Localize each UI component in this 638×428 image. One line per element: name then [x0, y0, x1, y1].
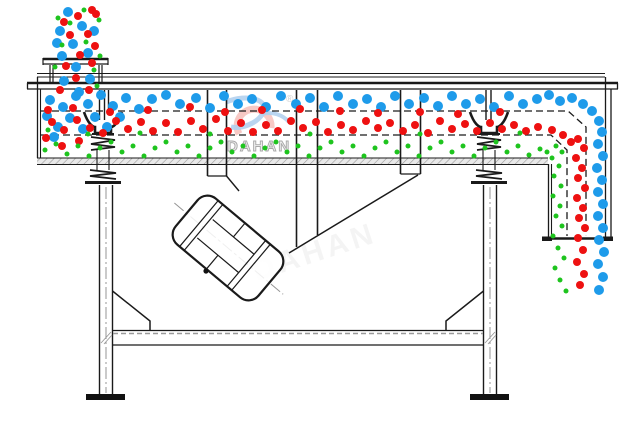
particle-large_blue — [599, 247, 609, 257]
particle-small_green — [274, 140, 279, 145]
brand-text: DAHAN — [227, 138, 291, 155]
particle-medium_red — [580, 144, 588, 152]
particle-small_green — [450, 150, 455, 155]
particle-small_green — [552, 174, 557, 179]
diagram-canvas: DAHAN ® DAHAN — [0, 0, 638, 428]
particle-small_green — [296, 144, 301, 149]
foot-pad-right — [470, 394, 509, 400]
particle-small_green — [153, 146, 158, 151]
particle-small_green — [46, 128, 51, 133]
particle-medium_red — [573, 194, 581, 202]
particle-small_green — [109, 140, 114, 145]
particle-large_blue — [63, 7, 73, 17]
particle-small_green — [329, 140, 334, 145]
particle-large_blue — [544, 90, 554, 100]
particle-medium_red — [578, 164, 586, 172]
particle-medium_red — [287, 117, 295, 125]
particle-small_green — [307, 154, 312, 159]
particle-small_green — [263, 146, 268, 151]
particle-medium_red — [567, 138, 575, 146]
particle-small_green — [556, 246, 561, 251]
particle-small_green — [120, 150, 125, 155]
particle-medium_red — [86, 124, 94, 132]
particle-medium_red — [581, 184, 589, 192]
particle-small_green — [554, 144, 559, 149]
particle-medium_red — [199, 125, 207, 133]
particle-large_blue — [555, 96, 565, 106]
particle-small_green — [417, 154, 422, 159]
particle-large_blue — [45, 95, 55, 105]
particle-small_green — [560, 150, 565, 155]
particle-large_blue — [390, 91, 400, 101]
particle-medium_red — [162, 119, 170, 127]
particle-medium_red — [66, 31, 74, 39]
particle-medium_red — [336, 107, 344, 115]
particle-medium_red — [187, 117, 195, 125]
particle-small_green — [527, 153, 532, 158]
particle-medium_red — [72, 74, 80, 82]
particle-medium_red — [84, 30, 92, 38]
particle-large_blue — [83, 48, 93, 58]
particle-medium_red — [42, 134, 50, 142]
particle-large_blue — [593, 211, 603, 221]
particle-medium_red — [579, 204, 587, 212]
particle-medium_red — [580, 270, 588, 278]
particle-small_green — [318, 146, 323, 151]
particle-large_blue — [161, 90, 171, 100]
particle-large_blue — [598, 151, 608, 161]
particle-medium_red — [576, 281, 584, 289]
particle-large_blue — [532, 94, 542, 104]
particle-small_green — [197, 154, 202, 159]
particle-small_green — [439, 140, 444, 145]
particle-medium_red — [574, 174, 582, 182]
particle-medium_red — [62, 62, 70, 70]
particle-large_blue — [175, 99, 185, 109]
particle-large_blue — [598, 199, 608, 209]
particle-large_blue — [419, 93, 429, 103]
particle-small_green — [60, 43, 65, 48]
particle-medium_red — [324, 128, 332, 136]
particle-large_blue — [49, 132, 59, 142]
particle-small_green — [175, 150, 180, 155]
particle-medium_red — [296, 105, 304, 113]
particle-medium_red — [137, 118, 145, 126]
particle-medium_red — [74, 12, 82, 20]
gusset-right — [446, 291, 484, 331]
particle-medium_red — [510, 121, 518, 129]
particle-medium_red — [48, 118, 56, 126]
particle-large_blue — [71, 62, 81, 72]
particle-small_green — [559, 184, 564, 189]
particle-medium_red — [399, 127, 407, 135]
particle-small_green — [564, 289, 569, 294]
particle-medium_red — [572, 154, 580, 162]
particle-large_blue — [319, 102, 329, 112]
particle-small_green — [494, 140, 499, 145]
particle-small_green — [516, 144, 521, 149]
support-leg-left — [86, 185, 125, 400]
gusset-left — [113, 291, 151, 331]
particle-medium_red — [337, 121, 345, 129]
particle-medium_red — [221, 108, 229, 116]
particle-small_green — [43, 148, 48, 153]
particle-large_blue — [594, 235, 604, 245]
particle-small_green — [208, 146, 213, 151]
particle-medium_red — [374, 109, 382, 117]
particle-small_green — [76, 144, 81, 149]
particle-small_green — [418, 132, 423, 137]
particle-small_green — [164, 140, 169, 145]
particle-small_green — [461, 144, 466, 149]
particle-small_green — [472, 154, 477, 159]
particle-small_green — [95, 84, 100, 89]
particle-medium_red — [496, 108, 504, 116]
particle-medium_red — [374, 124, 382, 132]
particle-small_green — [351, 144, 356, 149]
particle-small_green — [87, 154, 92, 159]
particle-small_green — [84, 40, 89, 45]
particle-small_green — [219, 140, 224, 145]
particle-small_green — [483, 146, 488, 151]
particle-medium_red — [473, 127, 481, 135]
particle-medium_red — [224, 127, 232, 135]
particle-medium_red — [237, 119, 245, 127]
particle-small_green — [373, 146, 378, 151]
particle-large_blue — [597, 175, 607, 185]
particle-small_green — [545, 150, 550, 155]
particle-medium_red — [212, 115, 220, 123]
particle-small_green — [142, 154, 147, 159]
particle-medium_red — [498, 125, 506, 133]
vibrating-screen-diagram: DAHAN ® DAHAN — [0, 0, 638, 428]
particle-large_blue — [518, 99, 528, 109]
particle-medium_red — [362, 117, 370, 125]
particle-medium_red — [69, 104, 77, 112]
particle-small_green — [550, 156, 555, 161]
particle-large_blue — [71, 91, 81, 101]
particle-small_green — [53, 65, 58, 70]
particle-medium_red — [522, 127, 530, 135]
particle-small_green — [241, 144, 246, 149]
particle-medium_red — [573, 258, 581, 266]
particle-medium_red — [249, 128, 257, 136]
particle-small_green — [538, 147, 543, 152]
particle-large_blue — [567, 93, 577, 103]
particle-medium_red — [575, 214, 583, 222]
particle-large_blue — [598, 223, 608, 233]
particle-small_green — [518, 131, 523, 136]
particle-large_blue — [58, 102, 68, 112]
particle-medium_red — [486, 119, 494, 127]
particle-medium_red — [574, 234, 582, 242]
particle-large_blue — [55, 26, 65, 36]
particle-large_blue — [598, 272, 608, 282]
particle-small_green — [186, 144, 191, 149]
particle-large_blue — [77, 21, 87, 31]
particle-medium_red — [112, 117, 120, 125]
particle-large_blue — [90, 112, 100, 122]
particle-small_green — [551, 194, 556, 199]
particle-medium_red — [411, 121, 419, 129]
particle-small_green — [252, 154, 257, 159]
particle-large_blue — [276, 91, 286, 101]
particle-medium_red — [454, 110, 462, 118]
particle-medium_red — [461, 120, 469, 128]
particle-small_green — [406, 144, 411, 149]
particle-medium_red — [73, 116, 81, 124]
particle-large_blue — [305, 93, 315, 103]
particle-large_blue — [593, 259, 603, 269]
particle-large_blue — [219, 91, 229, 101]
particle-small_green — [65, 152, 70, 157]
particle-medium_red — [92, 10, 100, 18]
particle-small_green — [551, 234, 556, 239]
particle-large_blue — [121, 93, 131, 103]
particle-medium_red — [56, 86, 64, 94]
motor-bolt-dot — [203, 268, 208, 273]
particle-large_blue — [587, 106, 597, 116]
particle-large_blue — [504, 91, 514, 101]
base-beam — [101, 331, 496, 346]
particle-large_blue — [348, 99, 358, 109]
particle-small_green — [384, 140, 389, 145]
particle-small_green — [98, 54, 103, 59]
particle-medium_red — [416, 108, 424, 116]
particle-large_blue — [362, 94, 372, 104]
particle-large_blue — [578, 99, 588, 109]
particle-medium_red — [581, 224, 589, 232]
particle-small_green — [553, 266, 558, 271]
particle-small_green — [505, 150, 510, 155]
particle-large_blue — [593, 187, 603, 197]
screen-box-lid — [27, 74, 618, 90]
support-leg-right — [470, 185, 509, 400]
particle-small_green — [97, 18, 102, 23]
particle-large_blue — [85, 74, 95, 84]
particle-small_green — [558, 278, 563, 283]
particle-medium_red — [60, 126, 68, 134]
particle-medium_red — [262, 121, 270, 129]
particle-medium_red — [258, 106, 266, 114]
particle-large_blue — [433, 101, 443, 111]
particle-medium_red — [579, 246, 587, 254]
particle-medium_red — [534, 123, 542, 131]
motor-link-line — [227, 176, 240, 191]
particle-medium_red — [299, 124, 307, 132]
particle-small_green — [395, 150, 400, 155]
particle-medium_red — [99, 129, 107, 137]
particle-small_green — [92, 68, 97, 73]
particle-large_blue — [594, 285, 604, 295]
particle-large_blue — [68, 39, 78, 49]
particle-large_blue — [404, 99, 414, 109]
particle-medium_red — [559, 131, 567, 139]
particle-small_green — [362, 154, 367, 159]
particle-large_blue — [233, 99, 243, 109]
particle-large_blue — [205, 103, 215, 113]
particle-large_blue — [83, 99, 93, 109]
screen-deck-2 — [41, 135, 567, 236]
particle-small_green — [308, 132, 313, 137]
particle-medium_red — [274, 127, 282, 135]
particle-medium_red — [44, 106, 52, 114]
foot-pad-left — [86, 394, 125, 400]
particle-large_blue — [134, 104, 144, 114]
particle-small_green — [82, 8, 87, 13]
particle-medium_red — [349, 126, 357, 134]
particle-medium_red — [144, 106, 152, 114]
particle-small_green — [560, 224, 565, 229]
particle-medium_red — [149, 127, 157, 135]
particle-small_green — [230, 150, 235, 155]
particle-large_blue — [461, 99, 471, 109]
particle-large_blue — [592, 163, 602, 173]
particle-medium_red — [60, 18, 68, 26]
particle-medium_red — [424, 129, 432, 137]
particle-large_blue — [447, 91, 457, 101]
particle-large_blue — [333, 91, 343, 101]
particle-small_green — [98, 146, 103, 151]
particle-large_blue — [96, 90, 106, 100]
particle-large_blue — [247, 94, 257, 104]
particle-medium_red — [386, 119, 394, 127]
particle-medium_red — [88, 59, 96, 67]
particle-medium_red — [76, 51, 84, 59]
particle-large_blue — [147, 94, 157, 104]
particle-small_green — [562, 256, 567, 261]
particle-medium_red — [186, 103, 194, 111]
particle-large_blue — [57, 51, 67, 61]
spring-assembly-right — [470, 90, 508, 183]
particle-small_green — [138, 131, 143, 136]
particle-small_green — [208, 132, 213, 137]
particle-small_green — [340, 150, 345, 155]
particle-small_green — [285, 150, 290, 155]
particle-medium_red — [548, 126, 556, 134]
particle-large_blue — [593, 139, 603, 149]
particle-small_green — [428, 146, 433, 151]
particle-large_blue — [59, 76, 69, 86]
particle-large_blue — [475, 94, 485, 104]
particle-medium_red — [174, 128, 182, 136]
particle-medium_red — [436, 117, 444, 125]
particle-medium_red — [85, 86, 93, 94]
particle-small_green — [68, 21, 73, 26]
particle-large_blue — [594, 116, 604, 126]
particle-small_green — [558, 204, 563, 209]
particle-medium_red — [124, 125, 132, 133]
particle-small_green — [86, 132, 91, 137]
particle-medium_red — [91, 42, 99, 50]
particle-medium_red — [574, 135, 582, 143]
particle-large_blue — [597, 127, 607, 137]
particle-small_green — [554, 214, 559, 219]
particle-small_green — [56, 16, 61, 21]
particle-medium_red — [106, 108, 114, 116]
particle-medium_red — [58, 142, 66, 150]
particle-small_green — [557, 164, 562, 169]
particle-medium_red — [448, 125, 456, 133]
particle-small_green — [54, 142, 59, 147]
particle-small_green — [131, 144, 136, 149]
particle-large_blue — [191, 93, 201, 103]
particle-medium_red — [312, 118, 320, 126]
box-bottom-plate — [37, 158, 548, 165]
